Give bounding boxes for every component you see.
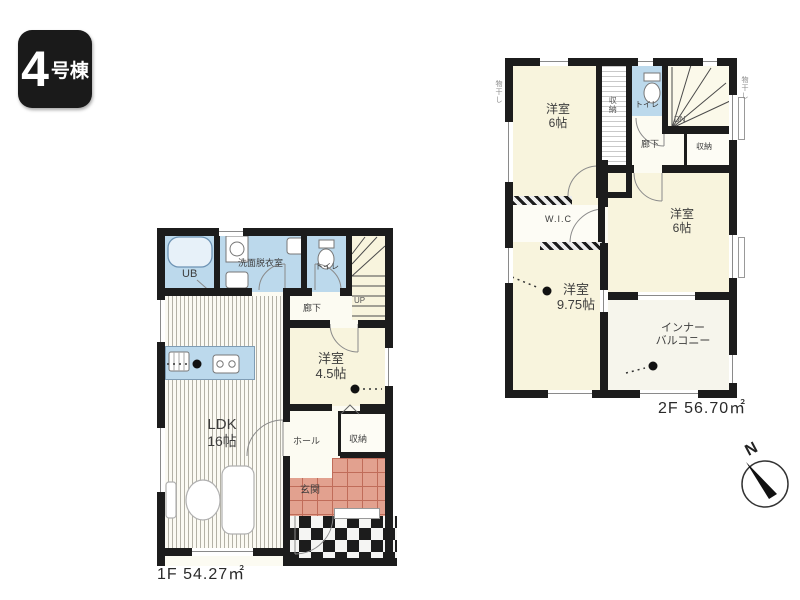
wall xyxy=(301,236,307,292)
annotation-left: 物干し xyxy=(494,80,502,104)
wall xyxy=(283,320,330,328)
wall xyxy=(662,66,668,130)
wall xyxy=(600,160,608,207)
building-suffix: 号棟 xyxy=(51,56,89,83)
room-label-closet-right: 収納 xyxy=(696,142,712,151)
room-label-closet-top: 収納 xyxy=(608,96,617,114)
wall xyxy=(662,126,737,134)
entrance-door-arc xyxy=(295,516,333,554)
window xyxy=(192,548,253,556)
wall xyxy=(695,292,729,300)
ceiling-light-symbols xyxy=(167,360,382,394)
floor-plan-page: 4 号棟 xyxy=(0,0,800,600)
window xyxy=(729,355,737,383)
room-label-storage-1f: 収納 xyxy=(349,434,367,444)
window xyxy=(385,348,393,386)
light-dot xyxy=(351,385,360,394)
wall xyxy=(600,243,608,290)
compass-needle-icon xyxy=(746,462,777,499)
wall xyxy=(608,292,638,300)
window-sill xyxy=(738,237,745,278)
room-label-ldk: LDK 16帖 xyxy=(207,416,237,449)
room-label-toilet-1f: トイレ xyxy=(315,262,339,271)
room-label-western-6b: 洋室 6帖 xyxy=(670,208,694,236)
window xyxy=(540,58,568,66)
closet-bifold-mark xyxy=(341,405,359,414)
window xyxy=(703,58,717,66)
wall xyxy=(608,165,634,173)
window xyxy=(729,235,737,278)
table-icon xyxy=(186,480,220,520)
floor2-symbols xyxy=(498,55,746,405)
floor2-area-label: 2F 56.70㎡ xyxy=(658,394,746,418)
room6a-door-arc xyxy=(568,166,598,196)
building-number: 4 xyxy=(21,44,49,94)
window xyxy=(638,58,653,66)
window xyxy=(729,95,737,140)
window xyxy=(219,228,243,236)
room-label-toilet-2f: トイレ xyxy=(635,100,659,109)
wall xyxy=(214,236,220,290)
wall xyxy=(157,228,393,236)
room-label-entrance: 玄関 xyxy=(300,485,320,497)
wall xyxy=(283,288,312,296)
room-label-washroom: 洗面脱衣室 xyxy=(238,258,283,268)
room6b-door-arc xyxy=(634,173,662,201)
wall xyxy=(340,452,393,458)
compass-north-label: N xyxy=(742,439,760,459)
wall xyxy=(662,165,729,173)
window xyxy=(505,248,513,283)
compass: N xyxy=(733,432,797,518)
window xyxy=(548,390,592,398)
stairs-up-label: UP xyxy=(354,296,365,305)
light-dot xyxy=(649,362,658,371)
wall xyxy=(283,404,332,411)
window xyxy=(157,300,165,342)
closet-wall-hatched xyxy=(513,196,572,205)
light-dot xyxy=(193,360,202,369)
room-label-western-6a: 洋室 6帖 xyxy=(546,103,570,131)
building-number-badge: 4 号棟 xyxy=(18,30,92,108)
stairs-dn-label: DN xyxy=(674,115,686,124)
room-label-western-45: 洋室 4.5帖 xyxy=(315,352,346,382)
wall xyxy=(360,404,393,411)
room-label-inner-balcony: インナー バルコニー xyxy=(656,322,711,347)
wall xyxy=(626,66,632,198)
toilet-tank-icon xyxy=(644,73,660,81)
vanity-icon xyxy=(226,272,248,288)
window xyxy=(505,122,513,182)
room-label-wic: W.I.C xyxy=(545,214,572,224)
annotation-right: 物干し xyxy=(740,76,748,100)
wall xyxy=(600,312,608,390)
wall xyxy=(283,456,290,566)
window-sill xyxy=(738,97,745,140)
room-label-corridor-2f: 廊下 xyxy=(641,139,659,149)
wall xyxy=(505,58,513,398)
room-label-western-975: 洋室 9.75帖 xyxy=(557,283,595,313)
window xyxy=(600,290,608,312)
sofa-icon xyxy=(222,466,254,534)
wall xyxy=(385,228,393,566)
light-dot xyxy=(543,287,552,296)
room-label-ub: UB xyxy=(182,268,197,281)
closet-wall-hatched xyxy=(540,242,605,250)
wall xyxy=(340,288,352,296)
room-label-hall: ホール xyxy=(293,436,320,446)
bathtub-icon xyxy=(168,237,212,267)
room-label-corridor-1f: 廊下 xyxy=(303,303,321,313)
floor1-area-label: 1F 54.27㎡ xyxy=(157,560,245,584)
ldk-door-arc xyxy=(247,420,283,456)
window xyxy=(157,428,165,492)
tv-board-icon xyxy=(166,482,176,518)
window xyxy=(638,292,695,300)
room45-door-arc xyxy=(330,324,358,352)
wall xyxy=(283,558,397,566)
toilet-tank-icon xyxy=(319,240,334,248)
wall xyxy=(346,236,352,296)
wall xyxy=(358,320,393,328)
wall xyxy=(157,228,165,566)
wall xyxy=(165,288,252,296)
